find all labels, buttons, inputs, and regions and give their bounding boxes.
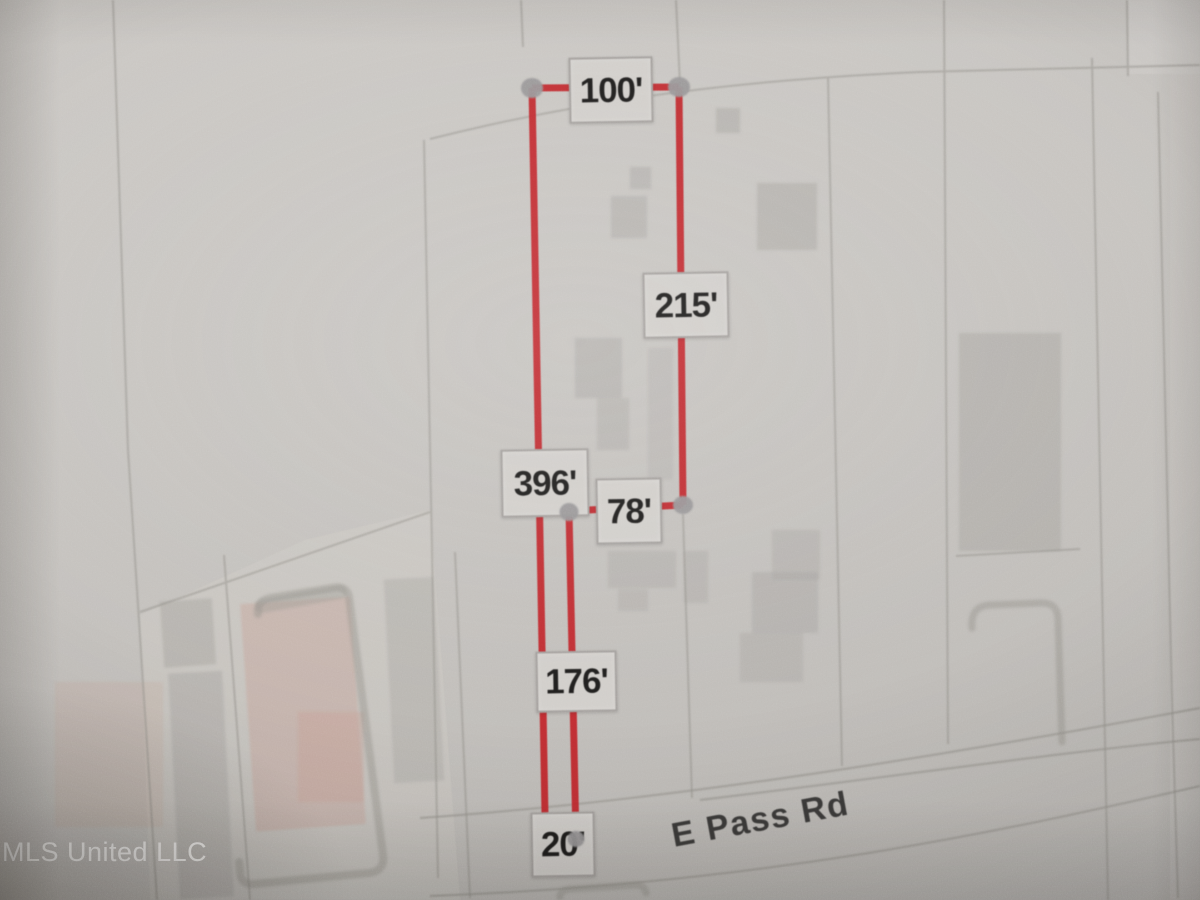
screen-content: 100' 215' 396' 78' 176' 20' E Pass Rd <box>0 0 1200 900</box>
watermark: MLS United LLC <box>2 838 207 868</box>
parcel-map <box>0 0 1200 900</box>
measurement-label-100ft: 100' <box>568 56 653 123</box>
measurement-label-78ft: 78' <box>595 477 662 544</box>
measurement-label-215ft: 215' <box>642 271 729 338</box>
measurement-label-176ft: 176' <box>535 650 617 712</box>
measurement-label-396ft: 396' <box>500 448 589 518</box>
measurement-label-20ft: 20' <box>530 811 595 877</box>
listing-photo: 100' 215' 396' 78' 176' 20' E Pass Rd ML… <box>0 0 1200 900</box>
